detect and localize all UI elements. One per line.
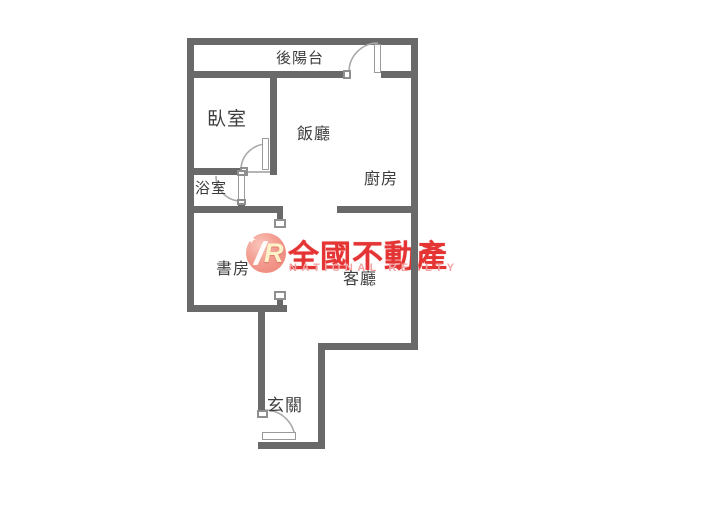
wall-cap-upper [274, 219, 286, 228]
room-label-bathroom: 浴室 [181, 177, 241, 197]
floor-plan: ✦ R 全國不動產 NATIONAL REALTY [0, 0, 701, 506]
door-leaf-bedroom [262, 138, 269, 170]
room-label-dining: 飯廳 [284, 122, 344, 142]
room-label-study: 書房 [203, 257, 263, 277]
door-jamb-balcony [343, 70, 351, 79]
wall-cap-lower [274, 291, 286, 300]
room-label-living: 客廳 [330, 267, 390, 287]
room-label-balcony: 後陽台 [270, 47, 330, 67]
room-label-entrance: 玄關 [255, 393, 315, 413]
room-label-kitchen: 廚房 [351, 167, 411, 187]
room-label-bedroom: 臥室 [197, 105, 257, 129]
door-jamb-bathroom-bottom [237, 199, 246, 205]
door-leaf-balcony [374, 44, 381, 73]
door-jamb-bathroom-top [237, 170, 246, 176]
door-leaf-entrance [262, 432, 296, 440]
